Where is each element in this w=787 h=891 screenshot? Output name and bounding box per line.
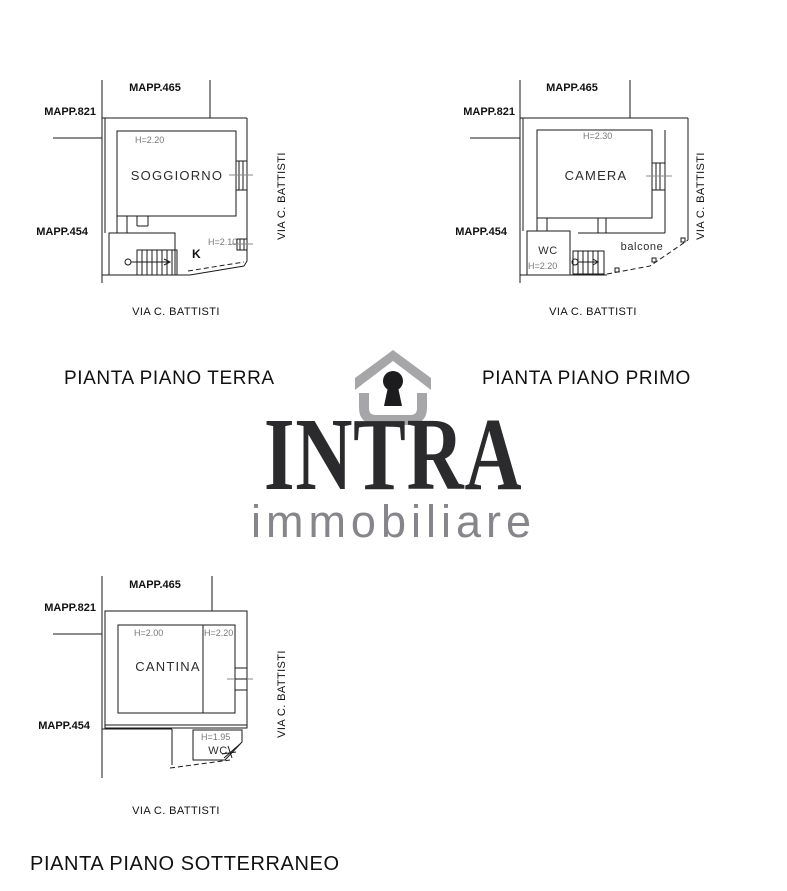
caption-ground-floor: PIANTA PIANO TERRA bbox=[64, 368, 275, 390]
floor-plan-ground: MAPP.465 MAPP.821 MAPP.454 H=2.20 SOGGIO… bbox=[20, 68, 320, 323]
plan-first-stairs bbox=[572, 251, 604, 274]
mapp-454-label: MAPP.454 bbox=[36, 226, 89, 238]
brand-subtitle: immobiliare bbox=[0, 499, 787, 544]
caption-first-floor: PIANTA PIANO PRIMO bbox=[482, 368, 691, 390]
camera-room-label: CAMERA bbox=[565, 168, 628, 183]
camera-height-label: H=2.30 bbox=[583, 131, 612, 141]
wc-height-label: H=1.95 bbox=[201, 732, 230, 742]
balcony-label: balcone bbox=[621, 241, 664, 253]
kitchen-height-label: H=2.10 bbox=[208, 237, 237, 247]
mapp-821-label: MAPP.821 bbox=[44, 602, 96, 614]
cantina-height-right-label: H=2.20 bbox=[204, 628, 233, 638]
plan-first-window-camera bbox=[646, 163, 672, 190]
wc-room-label: WC bbox=[208, 745, 228, 757]
plan-ground-window-soggiorno bbox=[229, 161, 253, 190]
street-right-label: VIA C. BATTISTI bbox=[276, 650, 288, 738]
soggiorno-height-label: H=2.20 bbox=[135, 135, 164, 145]
street-right-label: VIA C. BATTISTI bbox=[276, 152, 288, 240]
mapp-465-label: MAPP.465 bbox=[546, 82, 598, 94]
mapp-454-label: MAPP.454 bbox=[455, 226, 508, 238]
wc-height-label: H=2.20 bbox=[528, 261, 557, 271]
plan-ground-building-outline bbox=[102, 118, 247, 275]
street-bottom-label: VIA C. BATTISTI bbox=[132, 306, 220, 318]
mapp-821-label: MAPP.821 bbox=[44, 106, 96, 118]
street-bottom-label: VIA C. BATTISTI bbox=[549, 306, 637, 318]
street-bottom-label: VIA C. BATTISTI bbox=[132, 805, 220, 817]
floor-plan-basement: MAPP.465 MAPP.821 MAPP.454 H=2.00 H=2.20… bbox=[20, 568, 320, 823]
plan-ground-stairs bbox=[125, 250, 177, 275]
brand-wordmark: INTRA bbox=[0, 403, 787, 507]
mapp-821-label: MAPP.821 bbox=[463, 106, 515, 118]
wc-room-label: WC bbox=[538, 245, 558, 257]
mapp-465-label: MAPP.465 bbox=[129, 579, 181, 591]
street-right-label: VIA C. BATTISTI bbox=[695, 152, 707, 240]
kitchen-room-label: K bbox=[192, 247, 201, 261]
plan-basement-window bbox=[227, 668, 253, 690]
soggiorno-room-label: SOGGIORNO bbox=[131, 168, 223, 183]
cantina-height-left-label: H=2.00 bbox=[134, 628, 163, 638]
caption-basement: PIANTA PIANO SOTTERRANEO bbox=[30, 853, 340, 876]
mapp-465-label: MAPP.465 bbox=[129, 82, 181, 94]
floor-plan-first: MAPP.465 MAPP.821 MAPP.454 H=2.30 CAMERA… bbox=[440, 68, 740, 323]
mapp-454-label: MAPP.454 bbox=[38, 720, 91, 732]
cantina-room-label: CANTINA bbox=[135, 659, 200, 674]
